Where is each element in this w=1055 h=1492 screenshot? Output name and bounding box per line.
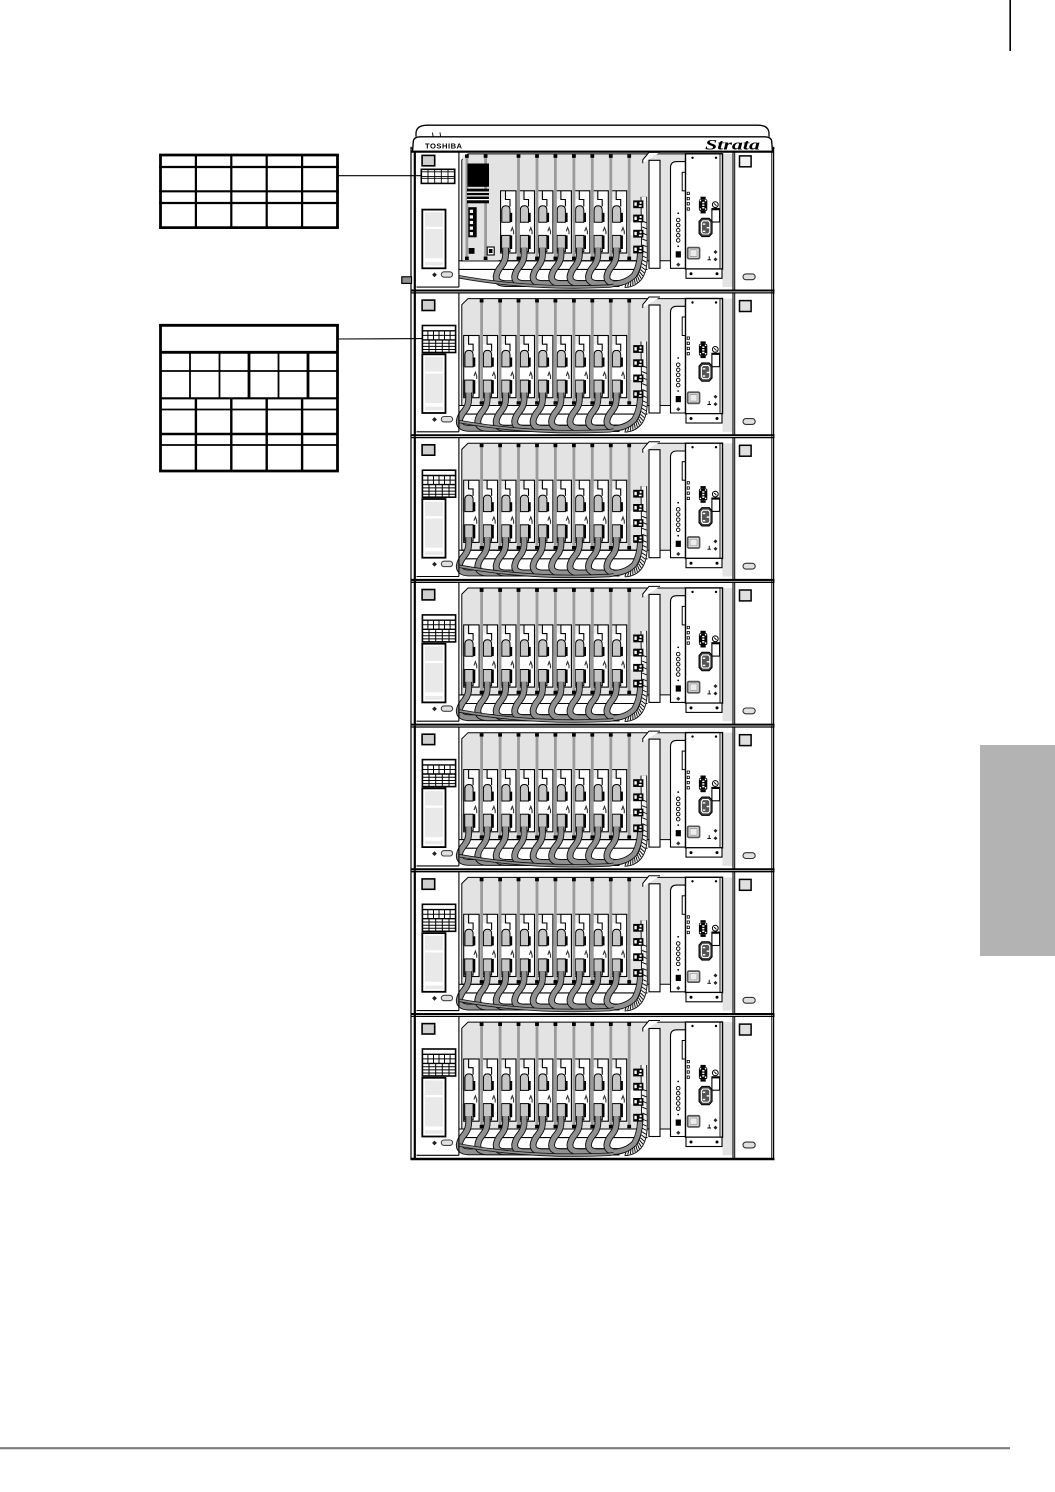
svg-text:TOSHIBA: TOSHIBA bbox=[425, 141, 463, 150]
svg-text:Strata: Strata bbox=[705, 138, 760, 154]
